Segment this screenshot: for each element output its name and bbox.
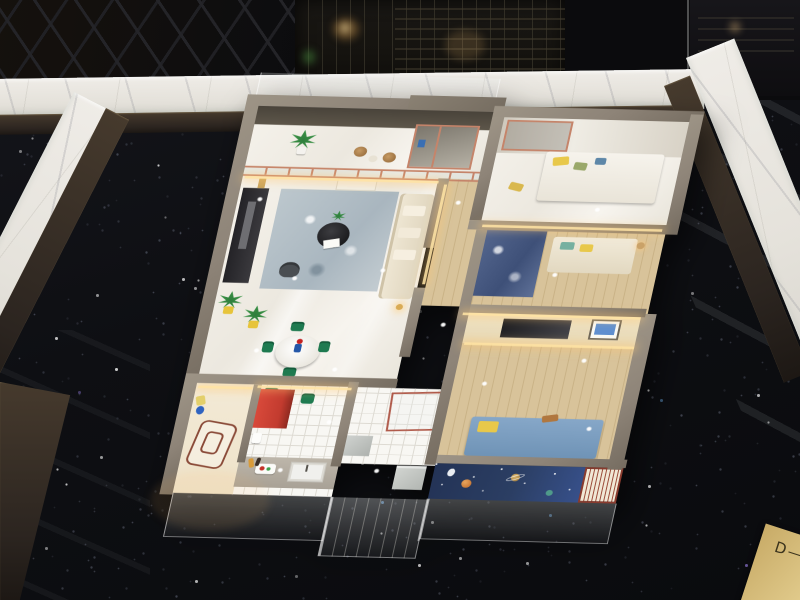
- bath-vanity-block: [343, 435, 373, 456]
- bedroom-tv: [500, 319, 572, 339]
- gallery-photo: D—: [0, 0, 800, 600]
- sofa-cushion-3: [392, 249, 416, 260]
- gray-cube-stool: [392, 466, 427, 490]
- wall-top-block: [407, 95, 506, 112]
- interior-glow: [445, 30, 485, 60]
- yellow-pot-2: [247, 321, 259, 329]
- light-dot: [440, 322, 447, 327]
- mural-planet-teal: [545, 490, 553, 496]
- sofa-cushion-2: [397, 228, 421, 239]
- kids-pillow-yellow: [477, 421, 499, 433]
- dining-chair-x2: [300, 393, 315, 403]
- glass-front-bathroom: [320, 497, 429, 559]
- plant-silhouette: [303, 50, 315, 64]
- bottle-amber: [248, 458, 254, 468]
- lamp-glow: [341, 24, 349, 32]
- mural-astronaut: [446, 468, 457, 477]
- warm-spill-light: [150, 470, 270, 530]
- mural-planet-orange: [460, 479, 472, 488]
- pillow-green: [573, 162, 588, 171]
- glass-front-kids: [420, 499, 617, 544]
- yellow-object: [196, 395, 206, 406]
- pillow-yellow: [553, 156, 570, 166]
- picture-art-blue: [594, 324, 616, 336]
- mural-stars: [435, 463, 437, 465]
- daybed-pillow-teal: [559, 242, 575, 250]
- pillow-blue: [594, 158, 606, 165]
- plaque-label: D—: [772, 538, 800, 565]
- sofa-cushion-1: [402, 206, 426, 217]
- daybed-pillow-yellow: [579, 244, 594, 252]
- space-mural: [428, 463, 586, 502]
- louver-shutter: [578, 467, 624, 504]
- dining-chair-n: [290, 322, 305, 332]
- bedroom2-window-frame: [501, 120, 574, 152]
- yellow-pot-1: [222, 306, 234, 314]
- small-glow: [730, 22, 740, 32]
- palm-pot-1: [296, 147, 307, 155]
- light-dot: [373, 468, 380, 473]
